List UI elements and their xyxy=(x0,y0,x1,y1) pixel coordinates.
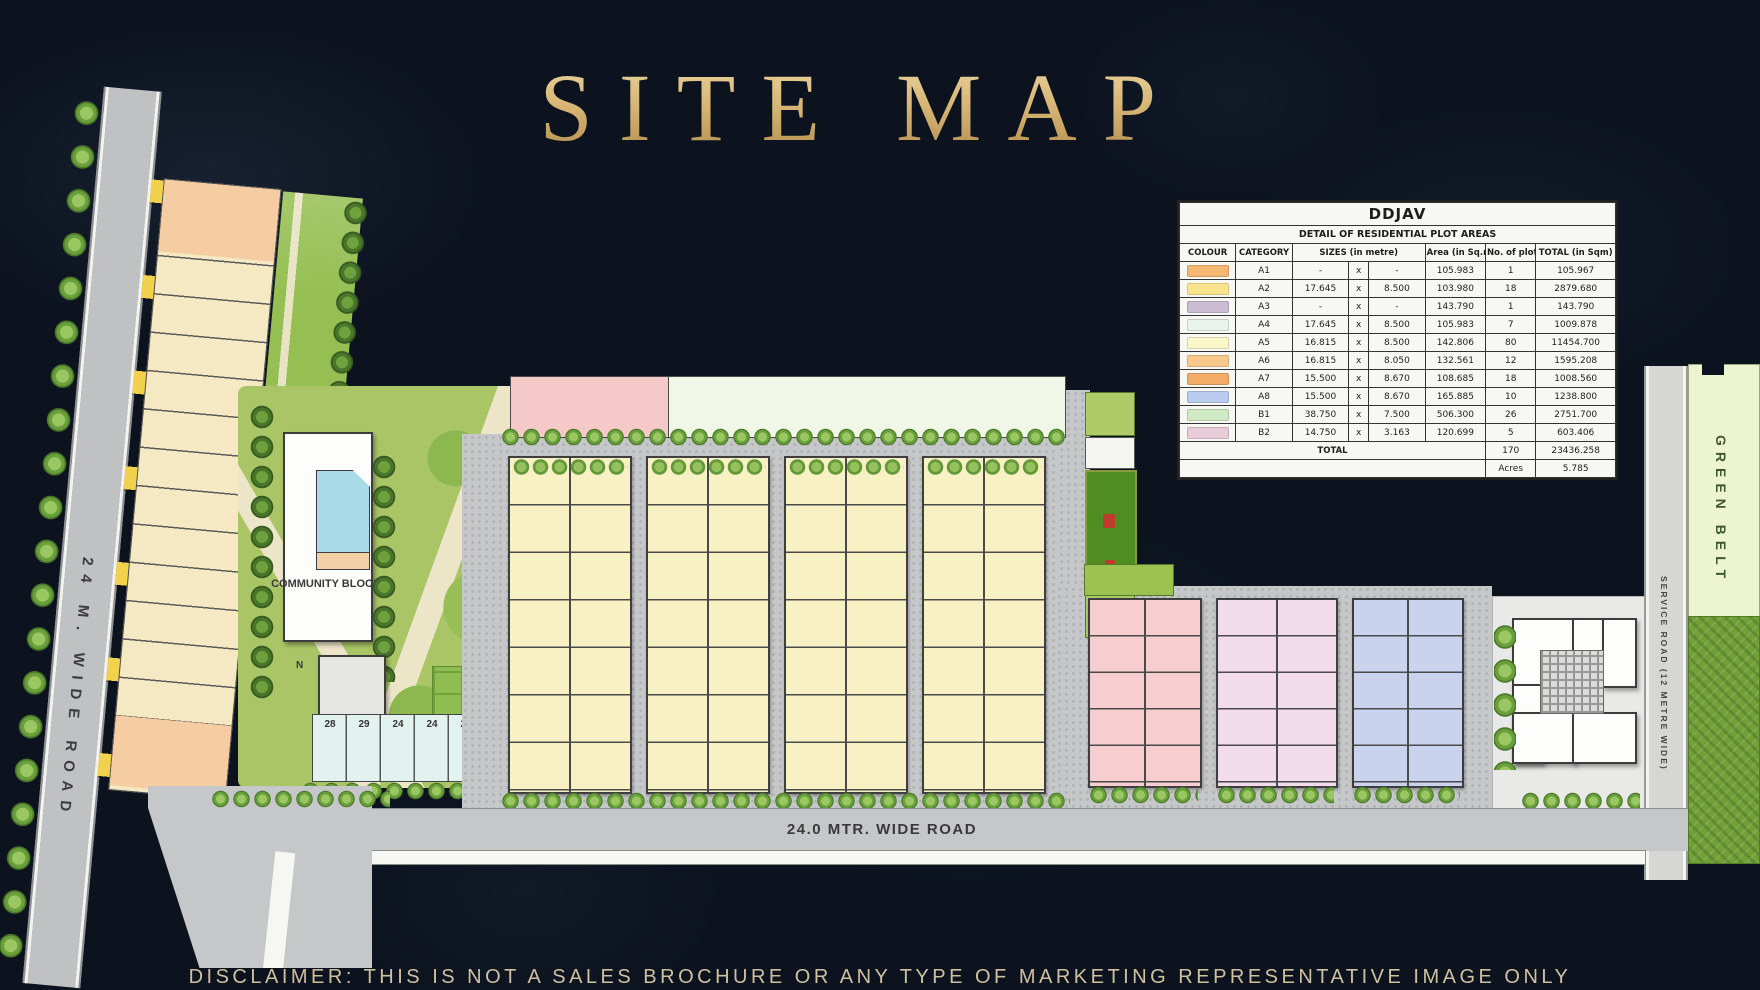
amenity-green-1 xyxy=(1085,392,1135,436)
legend-plot-count: 1 xyxy=(1486,298,1536,316)
colour-swatch xyxy=(1187,265,1229,277)
col-header-plots: No. of plot xyxy=(1486,244,1536,262)
legend-area: 506.300 xyxy=(1425,406,1485,424)
legend-size-h: 3.163 xyxy=(1369,424,1425,442)
colour-swatch xyxy=(1187,427,1229,439)
legend-colour-swatch xyxy=(1180,262,1236,280)
plot-block-1 xyxy=(508,456,632,794)
plot-block-lavender xyxy=(1216,598,1338,788)
plot-area-legend: DDJAV DETAIL OF RESIDENTIAL PLOT AREAS C… xyxy=(1177,200,1618,480)
legend-area: 120.699 xyxy=(1425,424,1485,442)
legend-category: A6 xyxy=(1236,352,1292,370)
tree-row-block3 xyxy=(788,459,904,475)
legend-size-h: 8.050 xyxy=(1369,352,1425,370)
legend-size-x: x xyxy=(1349,352,1369,370)
playground-equipment-icon xyxy=(1103,514,1115,528)
legend-total: 105.967 xyxy=(1536,262,1616,280)
legend-size-w: 15.500 xyxy=(1292,388,1348,406)
clubhouse-courtyard xyxy=(1540,650,1604,714)
legend-empty-cell xyxy=(1180,460,1486,478)
legend-total: 2879.680 xyxy=(1536,280,1616,298)
tree-column-left xyxy=(0,90,101,973)
legend-plot-count: 7 xyxy=(1486,316,1536,334)
legend-plot-count: 80 xyxy=(1486,334,1536,352)
legend-category: A8 xyxy=(1236,388,1292,406)
plot-block-blue xyxy=(1352,598,1464,788)
legend-size-h: 8.670 xyxy=(1369,370,1425,388)
legend-category: B2 xyxy=(1236,424,1292,442)
plot-block-pink xyxy=(1088,598,1202,788)
legend-row: B214.750x3.163120.6995603.406 xyxy=(1180,424,1616,442)
clubhouse-wing-se xyxy=(1572,712,1637,764)
community-block-label: COMMUNITY BLOCK xyxy=(270,578,382,591)
legend-colour-swatch xyxy=(1180,352,1236,370)
legend-row: A1-x-105.9831105.967 xyxy=(1180,262,1616,280)
left-road-label: 24 M. WIDE ROAD xyxy=(47,556,97,916)
legend-category: A4 xyxy=(1236,316,1292,334)
cyan-plot-number: 28 xyxy=(313,715,347,781)
legend-category: A3 xyxy=(1236,298,1292,316)
legend-row: A815.500x8.670165.885101238.800 xyxy=(1180,388,1616,406)
page-title: SITE MAP xyxy=(539,52,1182,163)
plot-entry-markers xyxy=(97,179,176,785)
cyan-plot-number: 24 xyxy=(381,715,415,781)
col-header-colour: COLOUR xyxy=(1180,244,1236,262)
legend-row: A3-x-143.7901143.790 xyxy=(1180,298,1616,316)
legend-category: A2 xyxy=(1236,280,1292,298)
legend-plot-count: 5 xyxy=(1486,424,1536,442)
legend-category: A7 xyxy=(1236,370,1292,388)
tree-row-block4 xyxy=(926,459,1042,475)
legend-area: 105.983 xyxy=(1425,316,1485,334)
tree-row-block2 xyxy=(650,459,766,475)
legend-area: 108.685 xyxy=(1425,370,1485,388)
utility-building xyxy=(318,655,386,717)
legend-size-x: x xyxy=(1349,388,1369,406)
tree-row-blue-block xyxy=(1352,786,1460,804)
legend-plot-count: 12 xyxy=(1486,352,1536,370)
legend-size-w: 17.645 xyxy=(1292,316,1348,334)
legend-total: 1008.560 xyxy=(1536,370,1616,388)
legend-size-x: x xyxy=(1349,424,1369,442)
legend-size-h: 8.500 xyxy=(1369,280,1425,298)
legend-total: 1595.208 xyxy=(1536,352,1616,370)
cyan-plot-row: 2829242427 xyxy=(312,714,484,782)
legend-colour-swatch xyxy=(1180,334,1236,352)
legend-size-w: - xyxy=(1292,298,1348,316)
legend-size-w: - xyxy=(1292,262,1348,280)
bottom-road: 24.0 MTR. WIDE ROAD xyxy=(262,808,1688,851)
tree-row-block1 xyxy=(512,459,628,475)
plot-peach-bottom xyxy=(110,715,232,795)
bottom-road-curb xyxy=(352,850,1646,865)
legend-size-w: 38.750 xyxy=(1292,406,1348,424)
col-header-category: CATEGORY xyxy=(1236,244,1292,262)
colour-swatch xyxy=(1187,391,1229,403)
tree-row-top-strip xyxy=(500,428,1066,446)
legend-colour-swatch xyxy=(1180,280,1236,298)
legend-colour-swatch xyxy=(1180,424,1236,442)
green-belt-notch xyxy=(1702,362,1724,375)
bottom-road-label: 24.0 MTR. WIDE ROAD xyxy=(702,821,1062,838)
col-header-total: TOTAL (in Sqm) xyxy=(1536,244,1616,262)
colour-swatch xyxy=(1187,409,1229,421)
plot-block-2 xyxy=(646,456,770,794)
legend-size-h: - xyxy=(1369,298,1425,316)
legend-project-title: DDJAV xyxy=(1180,203,1616,226)
legend-size-h: 7.500 xyxy=(1369,406,1425,424)
legend-size-x: x xyxy=(1349,298,1369,316)
plot-block-4 xyxy=(922,456,1046,794)
legend-colour-swatch xyxy=(1180,298,1236,316)
colour-swatch xyxy=(1187,301,1229,313)
legend-plot-count: 1 xyxy=(1486,262,1536,280)
tree-column-community-west xyxy=(250,402,276,702)
legend-size-x: x xyxy=(1349,280,1369,298)
legend-total-area: 23436.258 xyxy=(1536,442,1616,460)
legend-row: A417.645x8.500105.98371009.878 xyxy=(1180,316,1616,334)
tree-column-community-east xyxy=(372,452,398,682)
green-belt-label: GREEN BELT xyxy=(1713,435,1729,584)
legend-size-h: 8.670 xyxy=(1369,388,1425,406)
legend-row: A715.500x8.670108.685181008.560 xyxy=(1180,370,1616,388)
cyan-plot-number: 29 xyxy=(347,715,381,781)
legend-row: A616.815x8.050132.561121595.208 xyxy=(1180,352,1616,370)
legend-size-w: 16.815 xyxy=(1292,352,1348,370)
col-header-sizes: SIZES (in metre) xyxy=(1292,244,1425,262)
legend-colour-swatch xyxy=(1180,370,1236,388)
green-plot-east xyxy=(1084,564,1174,596)
colour-swatch xyxy=(1187,319,1229,331)
legend-area: 103.980 xyxy=(1425,280,1485,298)
legend-acres-value: 5.785 xyxy=(1536,460,1616,478)
disclaimer-text: DISCLAIMER: THIS IS NOT A SALES BROCHURE… xyxy=(0,966,1760,989)
service-road-label: SERVICE ROAD (12 METRE WIDE) xyxy=(1659,576,1669,771)
site-map-page: SITE MAP 24 M. WIDE ROAD COMMUNITY BLOCK… xyxy=(0,0,1760,990)
legend-size-w: 14.750 xyxy=(1292,424,1348,442)
tree-row-junction xyxy=(210,790,390,808)
tree-row-pink-block xyxy=(1088,786,1198,804)
legend-size-x: x xyxy=(1349,334,1369,352)
colour-swatch xyxy=(1187,355,1229,367)
legend-row: A516.815x8.500142.8068011454.700 xyxy=(1180,334,1616,352)
legend-total: 143.790 xyxy=(1536,298,1616,316)
legend-size-h: - xyxy=(1369,262,1425,280)
pool-deck xyxy=(316,552,370,570)
legend-category: B1 xyxy=(1236,406,1292,424)
legend-acres-label: Acres xyxy=(1486,460,1536,478)
legend-category: A5 xyxy=(1236,334,1292,352)
legend-colour-swatch xyxy=(1180,316,1236,334)
legend-table: DDJAV DETAIL OF RESIDENTIAL PLOT AREAS C… xyxy=(1179,202,1616,478)
legend-row: B138.750x7.500506.300262751.700 xyxy=(1180,406,1616,424)
legend-area: 142.806 xyxy=(1425,334,1485,352)
legend-plot-count: 26 xyxy=(1486,406,1536,424)
legend-plot-count: 10 xyxy=(1486,388,1536,406)
legend-subtitle: DETAIL OF RESIDENTIAL PLOT AREAS xyxy=(1180,226,1616,244)
north-label: N xyxy=(296,660,303,671)
amenity-kiosk xyxy=(1085,437,1135,469)
plot-a1-peach xyxy=(158,180,280,262)
junction-curb xyxy=(263,851,296,973)
legend-size-w: 15.500 xyxy=(1292,370,1348,388)
legend-total: 1009.878 xyxy=(1536,316,1616,334)
legend-size-h: 8.500 xyxy=(1369,334,1425,352)
legend-total-plots: 170 xyxy=(1486,442,1536,460)
legend-area: 143.790 xyxy=(1425,298,1485,316)
legend-size-x: x xyxy=(1349,262,1369,280)
colour-swatch xyxy=(1187,373,1229,385)
legend-total: 603.406 xyxy=(1536,424,1616,442)
left-road: 24 M. WIDE ROAD xyxy=(22,87,161,989)
col-header-area: Area (in Sq.m) xyxy=(1425,244,1485,262)
tree-column-clubhouse xyxy=(1494,620,1520,770)
legend-plot-count: 18 xyxy=(1486,370,1536,388)
colour-swatch xyxy=(1187,337,1229,349)
legend-area: 105.983 xyxy=(1425,262,1485,280)
clubhouse-wing-sw xyxy=(1512,712,1576,764)
service-road: SERVICE ROAD (12 METRE WIDE) xyxy=(1644,366,1688,880)
legend-area: 165.885 xyxy=(1425,388,1485,406)
legend-total-label: TOTAL xyxy=(1180,442,1486,460)
legend-area: 132.561 xyxy=(1425,352,1485,370)
legend-size-x: x xyxy=(1349,370,1369,388)
legend-category: A1 xyxy=(1236,262,1292,280)
legend-row: A217.645x8.500103.980182879.680 xyxy=(1180,280,1616,298)
legend-total: 1238.800 xyxy=(1536,388,1616,406)
legend-size-x: x xyxy=(1349,406,1369,424)
legend-total: 2751.700 xyxy=(1536,406,1616,424)
legend-colour-swatch xyxy=(1180,388,1236,406)
tree-row-lavender-block xyxy=(1216,786,1334,804)
plot-block-3 xyxy=(784,456,908,794)
cyan-plot-number: 24 xyxy=(415,715,449,781)
clubhouse-wing-ne xyxy=(1602,618,1637,688)
green-belt-upper: GREEN BELT xyxy=(1688,364,1760,618)
legend-plot-count: 18 xyxy=(1486,280,1536,298)
green-belt-garden xyxy=(1688,616,1760,864)
legend-size-x: x xyxy=(1349,316,1369,334)
cyan-plot-numbers: 2829242427 xyxy=(313,715,483,781)
legend-colour-swatch xyxy=(1180,406,1236,424)
legend-size-h: 8.500 xyxy=(1369,316,1425,334)
legend-size-w: 17.645 xyxy=(1292,280,1348,298)
legend-size-w: 16.815 xyxy=(1292,334,1348,352)
swimming-pool xyxy=(316,470,370,554)
legend-total: 11454.700 xyxy=(1536,334,1616,352)
colour-swatch xyxy=(1187,283,1229,295)
